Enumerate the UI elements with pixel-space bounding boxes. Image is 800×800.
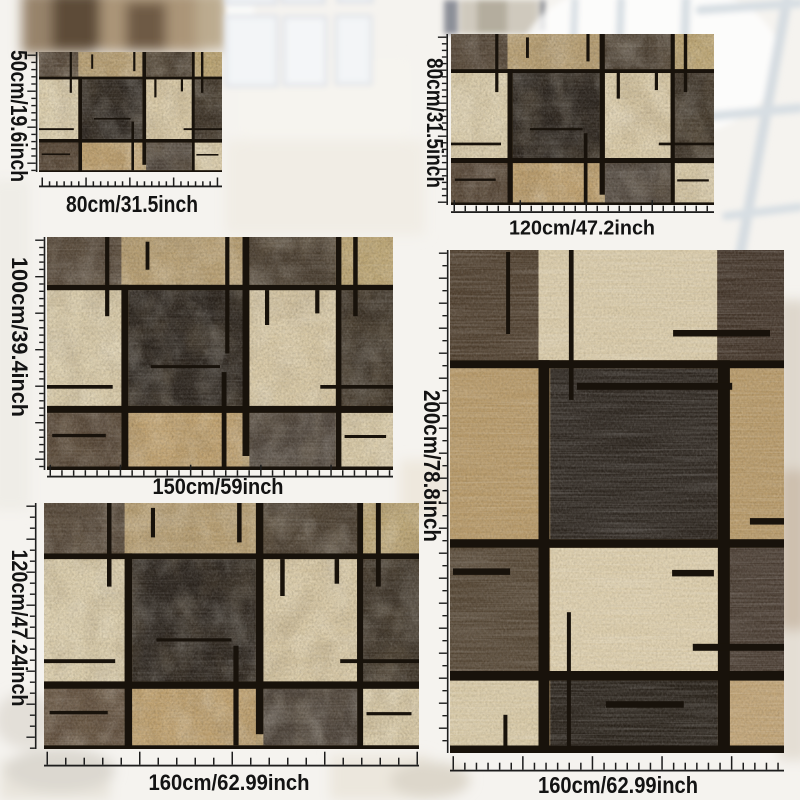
svg-text:150cm/59inch: 150cm/59inch — [153, 474, 284, 499]
svg-text:120cm/47.2inch: 120cm/47.2inch — [509, 218, 655, 240]
svg-text:80cm/31.5inch: 80cm/31.5inch — [66, 191, 198, 217]
svg-text:200cm/78.8inch: 200cm/78.8inch — [419, 390, 445, 542]
svg-text:120cm/47.24inch: 120cm/47.24inch — [7, 550, 32, 707]
svg-text:100cm/39.4inch: 100cm/39.4inch — [7, 257, 32, 417]
svg-text:160cm/62.99inch: 160cm/62.99inch — [149, 770, 310, 795]
svg-text:80cm/31.5inch: 80cm/31.5inch — [422, 58, 448, 188]
svg-text:160cm/62.99inch: 160cm/62.99inch — [538, 772, 698, 798]
svg-text:50cm/19.6inch: 50cm/19.6inch — [6, 50, 32, 182]
